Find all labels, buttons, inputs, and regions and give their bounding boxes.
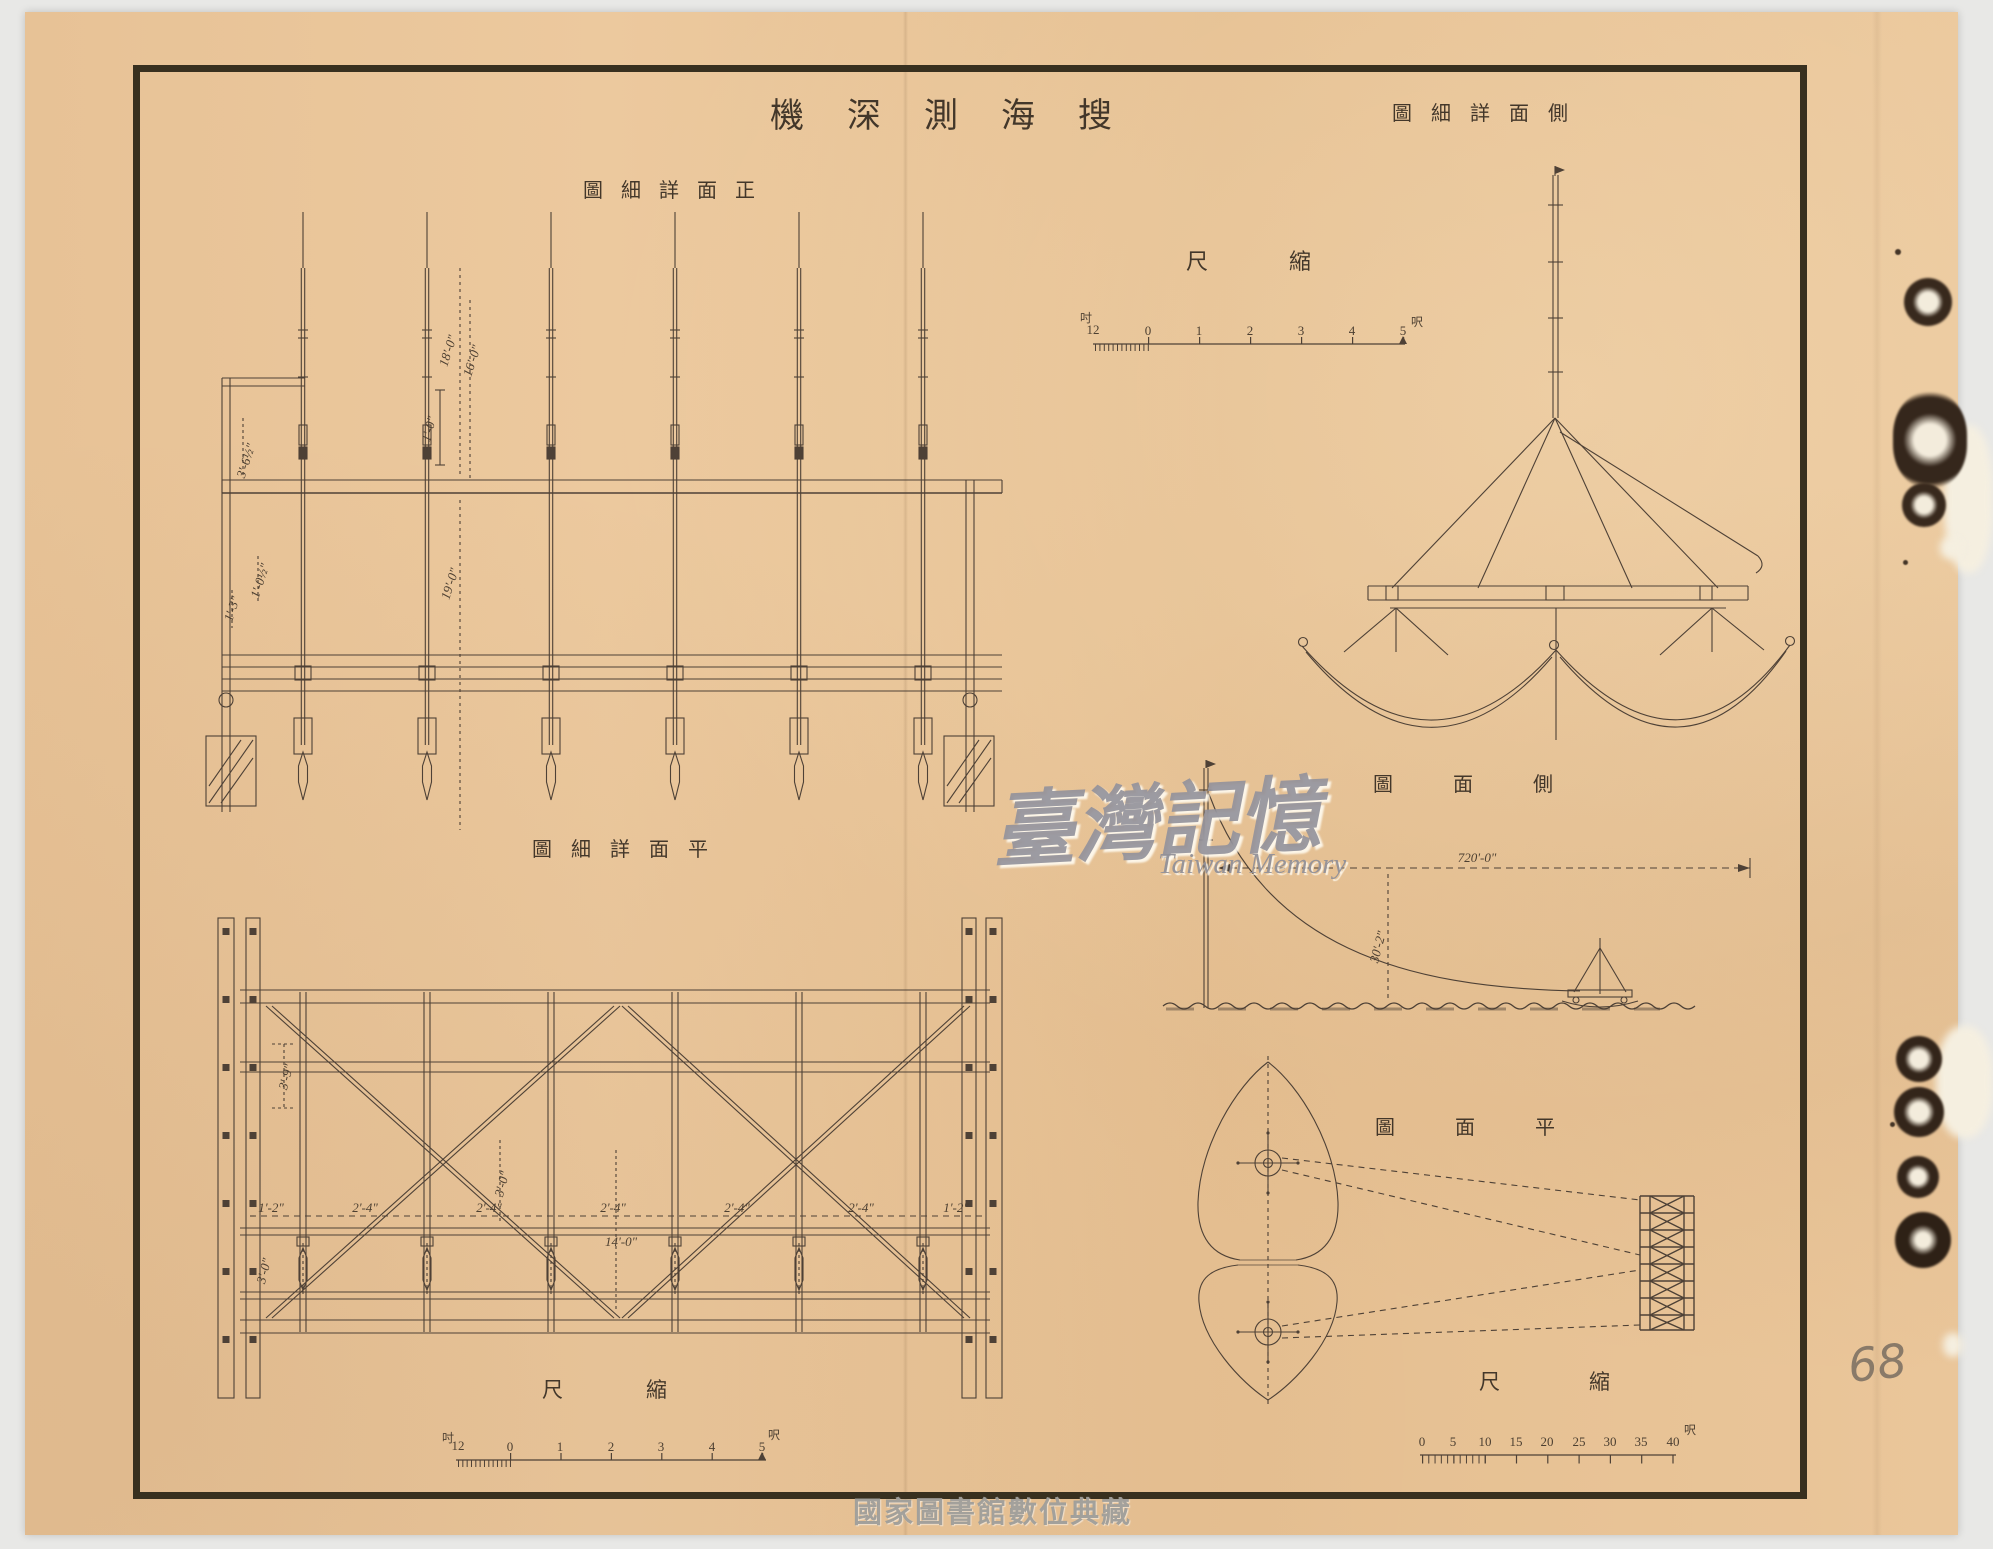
burn-hole — [1897, 1156, 1939, 1198]
dim-spacing-b: 1'-3" — [221, 594, 243, 623]
handwritten-note: 68 — [1845, 1333, 1909, 1393]
dim-mast-lower: 19'-0" — [438, 566, 462, 602]
scale-tick: 5 — [1450, 1434, 1457, 1449]
ink-speck — [1895, 249, 1901, 255]
dim-mast-upper: 18'-0" — [436, 333, 460, 369]
burn-hole — [1896, 1036, 1942, 1082]
scale-tick: 35 — [1635, 1434, 1648, 1449]
burn-hole — [1895, 1212, 1951, 1268]
dim-spacing-a: 1'-0½" — [247, 561, 272, 600]
dim-mast-inner: 16'-0" — [460, 343, 484, 379]
scale-bar-front: 12 0 1 2 3 4 5 吋 呎 — [1080, 311, 1423, 348]
scale-tick: 0 — [507, 1439, 514, 1454]
unit-feet: 呎 — [1684, 1423, 1696, 1437]
scale-tick: 15 — [1510, 1434, 1523, 1449]
label-plan-detail: 圖細詳面平 — [532, 840, 727, 860]
scale-tick: 25 — [1573, 1434, 1586, 1449]
taiwan-memory-watermark-en: Taiwan Memory — [1158, 848, 1346, 881]
ink-speck — [1890, 1122, 1895, 1127]
dim-seg-5: 2'-4" — [848, 1200, 874, 1215]
dim-width-a: 3'-9" — [275, 1062, 297, 1092]
dim-cable-length: 720'-0" — [1458, 850, 1497, 865]
dim-offset: 1'-0" — [418, 414, 439, 443]
scale-tick: 0 — [1419, 1434, 1426, 1449]
front-elevation-drawing: 18'-0" 16'-0" 1'-0" 19'-0" 3'-6½" 1'-0½"… — [206, 212, 1002, 830]
scale-tick: 3 — [658, 1439, 665, 1454]
dim-width-c: 3'-0" — [253, 1256, 275, 1286]
unit-inch: 吋 — [1080, 311, 1092, 325]
label-plan-view: 圖面平 — [1375, 1118, 1615, 1138]
paper-hole-patch — [1936, 1026, 1993, 1138]
dim-seg-end-l: 1'-2" — [258, 1200, 284, 1215]
dim-total: 14'-0" — [605, 1234, 638, 1249]
scale-tick: 40 — [1667, 1434, 1680, 1449]
white-spot — [1943, 1333, 1963, 1357]
dim-seg-1: 2'-4" — [352, 1200, 378, 1215]
plan-view-drawing — [1198, 1056, 1694, 1404]
scale-tick: 5 — [1400, 323, 1407, 338]
scale-tick: 3 — [1298, 323, 1305, 338]
label-scale-right: 尺縮 — [1479, 1372, 1699, 1393]
label-scale-plan: 尺縮 — [542, 1380, 750, 1401]
plan-detail-drawing: 1'-2" 2'-4" 2'-4" 2'-4" 2'-4" 2'-4" 1'-2… — [218, 918, 1002, 1398]
unit-inch: 吋 — [442, 1431, 454, 1445]
scanned-document: 18'-0" 16'-0" 1'-0" 19'-0" 3'-6½" 1'-0½"… — [0, 0, 1993, 1549]
label-side-detail: 圖細詳面側 — [1392, 104, 1587, 124]
scale-tick: 1 — [1196, 323, 1203, 338]
dim-seg-3: 2'-4" — [600, 1200, 626, 1215]
dim-depth: 30'-2" — [1366, 929, 1389, 965]
dim-beam-height: 3'-6½" — [233, 441, 259, 481]
unit-feet: 呎 — [768, 1428, 780, 1442]
scale-tick: 0 — [1145, 323, 1152, 338]
label-side-view: 圖面側 — [1373, 775, 1613, 795]
scale-tick: 10 — [1479, 1434, 1492, 1449]
scale-tick: 2 — [608, 1439, 615, 1454]
dim-seg-4: 2'-4" — [724, 1200, 750, 1215]
burn-hole — [1902, 483, 1946, 527]
label-scale-front: 尺縮 — [1186, 251, 1392, 273]
scale-tick: 20 — [1541, 1434, 1554, 1449]
burn-hole — [1893, 392, 1967, 488]
dim-seg-2: 2'-4" — [476, 1200, 502, 1215]
dim-width-b: 3'-0" — [491, 1169, 513, 1199]
scale-tick: 4 — [709, 1439, 716, 1454]
burn-hole — [1894, 1087, 1944, 1137]
library-watermark: 國家圖書館數位典藏 — [853, 1489, 1132, 1531]
scale-bar-right: 0 5 10 15 20 25 30 35 40 呎 — [1419, 1423, 1696, 1460]
burn-hole — [1904, 278, 1952, 326]
scale-tick: 4 — [1349, 323, 1356, 338]
scale-tick: 30 — [1604, 1434, 1617, 1449]
scale-tick: 2 — [1247, 323, 1254, 338]
scale-bar-plan: 12 0 1 2 3 4 5 吋 呎 — [442, 1428, 780, 1464]
unit-feet: 呎 — [1411, 315, 1423, 329]
white-spot — [1940, 537, 1962, 559]
ink-speck — [1903, 560, 1908, 565]
dim-seg-end-r: 1'-2" — [943, 1200, 969, 1215]
label-front-detail: 圖細詳面正 — [583, 181, 773, 201]
sheet-title: 機深測海搜 — [770, 100, 1155, 134]
scale-tick: 5 — [759, 1439, 766, 1454]
scale-tick: 1 — [557, 1439, 564, 1454]
